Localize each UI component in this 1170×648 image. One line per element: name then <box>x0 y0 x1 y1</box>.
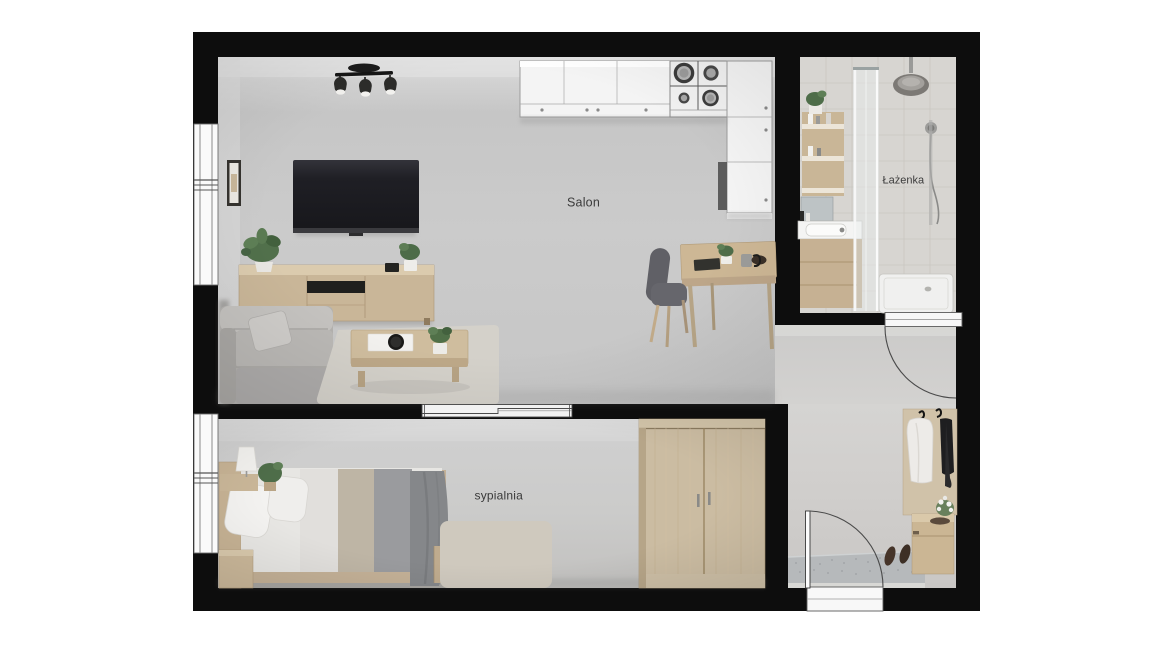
svg-text:Łażenka: Łażenka <box>883 175 925 187</box>
